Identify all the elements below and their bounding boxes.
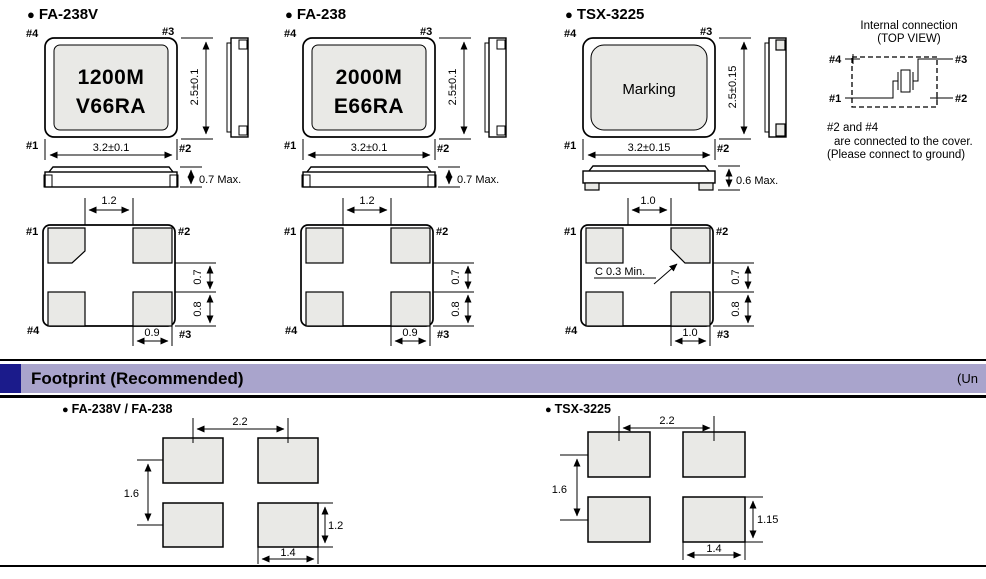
dim-width: 3.2±0.1 (351, 142, 388, 154)
pad-4 (306, 292, 343, 326)
dim-thickness: 0.7 Max. (457, 174, 499, 186)
note-line3: (Please connect to ground) (827, 149, 986, 163)
dim-pad-height: 0.8 (730, 301, 742, 316)
pin-label: #2 (717, 143, 729, 155)
footprint-pad (258, 503, 318, 547)
section-title: Footprint (Recommended) (31, 364, 244, 393)
side-view (765, 38, 786, 137)
marking-line1: Marking (622, 81, 675, 98)
section-divider (0, 395, 986, 398)
pin-label: #1 (26, 140, 38, 152)
dim-height: 2.5±0.1 (189, 69, 201, 106)
dim-pad-width: 1.4 (280, 547, 295, 559)
dim-pad-height: 1.15 (757, 514, 778, 526)
pin-label: #1 (284, 140, 296, 152)
package-fa-238: ●FA-238 2000M E66RA #4 #3 #1 #2 3.2±0.1 … (273, 0, 528, 360)
marking-line1: 2000M (336, 66, 403, 89)
dim-pad-gap: 0.7 (730, 269, 742, 284)
pin-label: #4 (284, 28, 297, 40)
bullet-icon: ● (565, 7, 573, 22)
dim-pad-width: 1.4 (706, 543, 721, 555)
pin-label: #1 (26, 226, 38, 238)
pin-label: #3 (955, 54, 967, 66)
dim-thickness: 0.6 Max. (736, 175, 778, 187)
pin-label: #4 (829, 54, 842, 66)
pin-label: #2 (179, 143, 191, 155)
pad-3 (391, 292, 430, 326)
pin-label: #1 (284, 226, 296, 238)
marking-line2: V66RA (76, 95, 146, 118)
side-view (227, 38, 248, 137)
marking-line2: E66RA (334, 95, 404, 118)
pin-label: #3 (717, 329, 729, 341)
internal-connection-schematic: #4 #3 #1 #2 (820, 46, 986, 118)
footprint-pad (163, 503, 223, 547)
bullet-icon: ● (62, 404, 69, 416)
pin-label: #3 (420, 26, 432, 38)
front-view: 0.6 Max. (583, 166, 778, 190)
dim-pitch-y: 1.6 (124, 488, 139, 500)
pin-label: #2 (178, 226, 190, 238)
pin-label: #4 (26, 28, 39, 40)
section-divider (0, 565, 986, 567)
dim-pitch-y: 1.6 (552, 484, 567, 496)
package-drawing: 2000M E66RA #4 #3 #1 #2 3.2±0.1 2.5±0.1 (273, 24, 523, 364)
internal-connection-note: #2 and #4 are connected to the cover. (P… (827, 122, 986, 163)
footprint-drawing-tsx: 2.2 1.6 1.15 1.4 (525, 410, 825, 568)
dim-width: 3.2±0.15 (628, 142, 671, 154)
pin-label: #2 (436, 226, 448, 238)
unit-label: (Un (957, 371, 978, 386)
footprint-pad (163, 438, 223, 483)
top-view: Marking #4 #3 #1 #2 3.2±0.15 2.5±0.15 (564, 26, 751, 160)
package-name: TSX-3225 (577, 6, 645, 23)
bottom-view: 1.2 #1 #2 #4 #3 0.7 0.8 0.9 (284, 195, 474, 346)
top-view: 2000M E66RA #4 #3 #1 #2 3.2±0.1 2.5±0.1 (284, 26, 471, 160)
footprint-pad (258, 438, 318, 483)
pin-label: #1 (564, 140, 576, 152)
dim-height: 2.5±0.15 (727, 66, 739, 109)
dim-pad-gap: 0.7 (450, 269, 462, 284)
dim-width: 3.2±0.1 (93, 142, 130, 154)
bullet-icon: ● (27, 7, 35, 22)
pin-label: #2 (955, 93, 967, 105)
internal-connection-title-line2: (TOP VIEW) (830, 33, 986, 46)
dim-pad-gap: 0.7 (192, 269, 204, 284)
package-tsx-3225: ●TSX-3225 Marking #4 #3 #1 #2 3.2±0.15 2… (553, 0, 808, 360)
side-view (485, 38, 506, 137)
section-divider (0, 359, 986, 361)
footprint-drawing-fa: 2.2 1.6 1.2 1.4 (95, 410, 355, 568)
dim-pad-height: 0.8 (192, 301, 204, 316)
package-name: FA-238 (297, 6, 346, 23)
package-name: FA-238V (39, 6, 98, 23)
footprint-pad (683, 497, 745, 542)
dim-thickness: 0.7 Max. (199, 174, 241, 186)
datasheet-page: ●FA-238V 1200M V66RA #4 #3 #1 #2 3.2±0.1… (0, 0, 986, 579)
section-accent-square (0, 364, 21, 393)
pad-3 (671, 292, 710, 326)
dim-pad-spacing: 1.2 (359, 195, 374, 207)
pad-2 (391, 228, 430, 263)
package-fa-238v: ●FA-238V 1200M V66RA #4 #3 #1 #2 3.2±0.1… (15, 0, 270, 360)
dim-pad-width: 0.9 (144, 327, 159, 339)
pad-1 (586, 228, 623, 263)
pad-4 (586, 292, 623, 326)
chamfer-note: C 0.3 Min. (595, 266, 645, 278)
pin-label: #3 (437, 329, 449, 341)
footprint-pad (588, 497, 650, 542)
pin-label: #4 (27, 325, 40, 337)
note-line1: #2 and #4 (827, 122, 986, 136)
dim-pad-spacing: 1.2 (101, 195, 116, 207)
dim-pad-height: 0.8 (450, 301, 462, 316)
dim-pad-height: 1.2 (328, 520, 343, 532)
package-drawing: 1200M V66RA #4 #3 #1 #2 3.2±0.1 2.5±0.1 (15, 24, 265, 364)
dim-pad-spacing: 1.0 (640, 195, 655, 207)
dim-pitch-x: 2.2 (232, 416, 247, 428)
pin-label: #4 (285, 325, 298, 337)
bottom-view: 1.0 #1 #2 #4 #3 C 0.3 Min. 0.7 0.8 (564, 195, 754, 346)
pad-3 (133, 292, 172, 326)
pin-label: #1 (564, 226, 576, 238)
pin-label: #2 (437, 143, 449, 155)
package-title: ●FA-238V (27, 6, 98, 23)
internal-connection-title: Internal connection (TOP VIEW) (830, 20, 986, 46)
pad-2 (133, 228, 172, 263)
dim-pad-width: 0.9 (402, 327, 417, 339)
dim-pitch-x: 2.2 (659, 415, 674, 427)
note-line2: are connected to the cover. (827, 136, 986, 150)
pin-label: #2 (716, 226, 728, 238)
internal-connection-title-line1: Internal connection (830, 20, 986, 33)
pin-label: #3 (179, 329, 191, 341)
pin-label: #1 (829, 93, 841, 105)
package-title: ●FA-238 (285, 6, 346, 23)
pin-label: #4 (564, 28, 577, 40)
bullet-icon: ● (285, 7, 293, 22)
pin-label: #3 (700, 26, 712, 38)
pin-label: #3 (162, 26, 174, 38)
bottom-view: 1.2 #1 #2 #4 #3 0.7 0.8 0.9 (26, 195, 216, 346)
front-view: 0.7 Max. (302, 167, 499, 187)
top-view: 1200M V66RA #4 #3 #1 #2 3.2±0.1 2.5±0.1 (26, 26, 213, 160)
front-view: 0.7 Max. (44, 167, 241, 187)
package-title: ●TSX-3225 (565, 6, 644, 23)
dim-height: 2.5±0.1 (447, 69, 459, 106)
pad-1 (306, 228, 343, 263)
marking-line1: 1200M (78, 66, 145, 89)
footprint-section-header: Footprint (Recommended) (Un (0, 364, 986, 393)
dim-pad-width: 1.0 (682, 327, 697, 339)
pad-4 (48, 292, 85, 326)
pin-label: #4 (565, 325, 578, 337)
package-drawing: Marking #4 #3 #1 #2 3.2±0.15 2.5±0.15 (553, 24, 803, 364)
